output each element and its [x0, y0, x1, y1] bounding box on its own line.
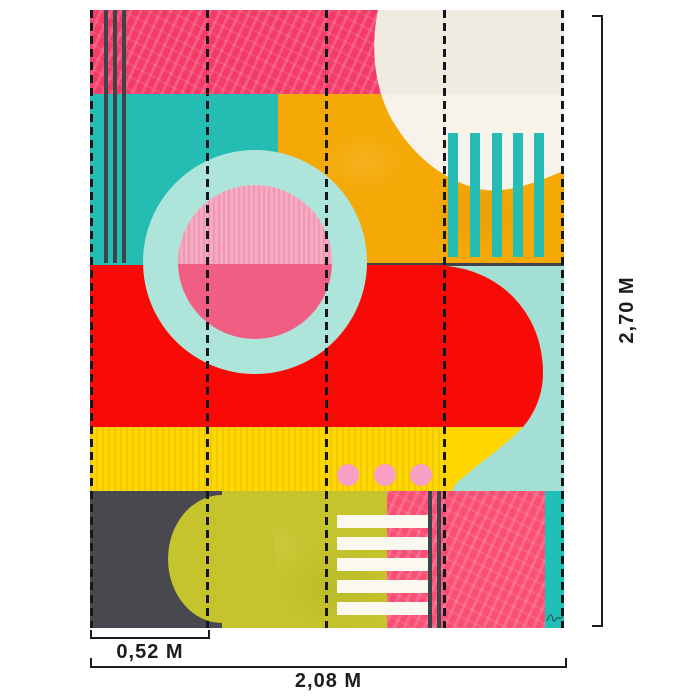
panel-seam-line [443, 10, 446, 628]
white-stripe [337, 580, 428, 593]
product-image: 2,70 M 0,52 M 2,08 M [0, 0, 700, 700]
pink-dot [374, 464, 396, 486]
pinstripe-line [122, 10, 126, 263]
panel-seam-line [90, 10, 93, 628]
teal-bar [470, 133, 480, 257]
teal-bar [448, 133, 458, 257]
white-stripe [337, 537, 428, 550]
olive-half-circle [168, 495, 276, 623]
panel-width-dimension-line [90, 637, 210, 639]
teal-bar [513, 133, 523, 257]
white-stripe [337, 515, 428, 528]
wallpaper-artwork [90, 10, 564, 628]
height-dimension-cap-bottom [592, 625, 603, 627]
pink-dot [410, 464, 432, 486]
pink-core-circle [178, 185, 332, 339]
white-stripe [337, 602, 428, 615]
pinstripe-line [113, 10, 117, 263]
panel-width-tick-left [90, 630, 92, 639]
pink-dot [337, 464, 359, 486]
panel-seam-line [206, 10, 209, 628]
pinstripe-line [428, 491, 432, 628]
panel-width-tick-right [208, 630, 210, 639]
height-dimension-cap-top [592, 15, 603, 17]
aqua-panel [445, 266, 564, 491]
height-dimension-line [601, 15, 603, 627]
white-stripe [337, 558, 428, 571]
teal-bar [492, 133, 502, 257]
width-tick-right [565, 658, 567, 668]
teal-bar [534, 133, 544, 257]
width-dimension-line [90, 666, 567, 668]
panel-seam-line [561, 10, 564, 628]
pinstripe-line [437, 491, 441, 628]
panel-width-dimension-label: 0,52 M [90, 641, 210, 664]
panel-seam-line [325, 10, 328, 628]
pink-core-bottom-half [178, 264, 332, 339]
height-dimension-label: 2,70 M [616, 270, 640, 350]
width-dimension-label: 2,08 M [90, 670, 567, 693]
width-tick-left [90, 658, 92, 668]
pinstripe-line [104, 10, 108, 263]
